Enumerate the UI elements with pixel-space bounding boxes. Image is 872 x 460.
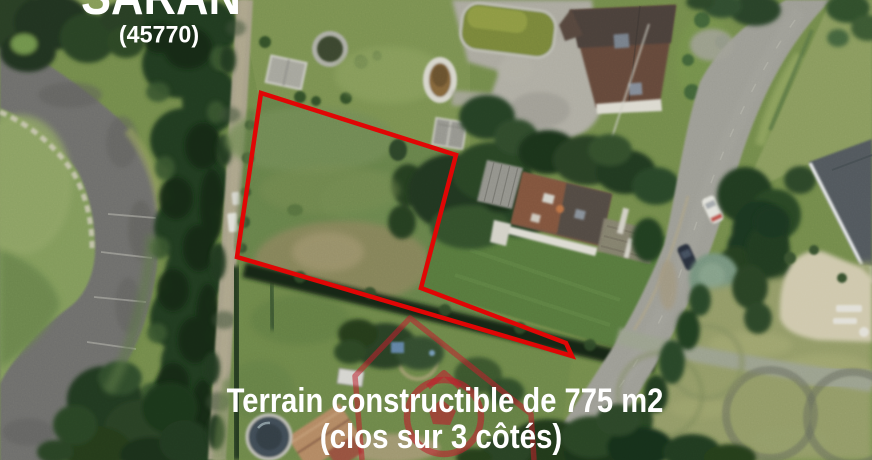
svg-text:(clos sur 3 côtés): (clos sur 3 côtés): [320, 417, 562, 456]
svg-text:(45770): (45770): [119, 22, 199, 48]
svg-text:Terrain constructible de 775 m: Terrain constructible de 775 m2: [227, 381, 664, 420]
